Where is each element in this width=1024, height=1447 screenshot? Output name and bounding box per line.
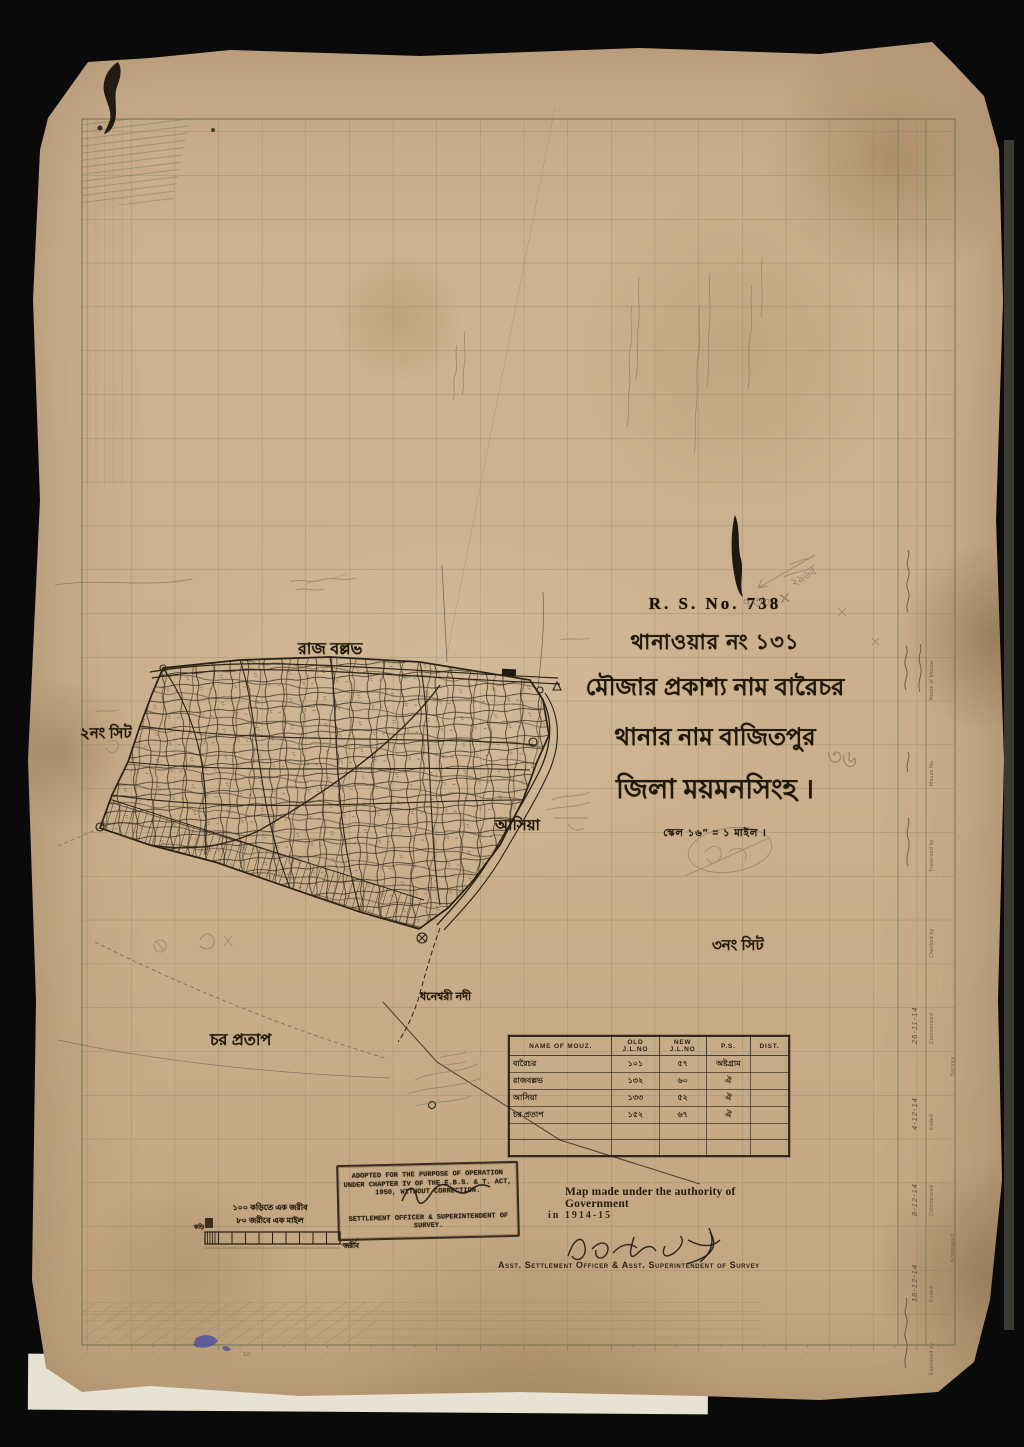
cell-old: ১৩২: [612, 1073, 659, 1090]
cell-new: ৬৭: [659, 1107, 706, 1124]
cell-name: বারৈচর: [509, 1056, 612, 1073]
margin-group-survey: Survey: [950, 1056, 956, 1076]
rs-number: R. S. No. 738: [545, 594, 885, 614]
mouza-table-header-row: NAME OF MOUZ. OLD J.L.NO NEW J.L.NO P.S.…: [509, 1036, 789, 1056]
scale-unit-right: জরীব: [343, 1240, 359, 1252]
authority-line1: Map made under the authority of Governme…: [565, 1186, 770, 1210]
mouza-name-line: মৌজার প্রকাশ্য নাম বারৈচর: [545, 669, 885, 709]
cell-dist: [750, 1107, 789, 1124]
table-row: বারৈচর ১০১ ৫৭ অষ্টগ্রাম: [509, 1056, 789, 1073]
scanned-map-sheet: R. S. No. 738 থানাওয়ার নং ১৩১ মৌজার প্র…: [0, 0, 1024, 1447]
cell-name: রাজবল্লভ: [509, 1073, 612, 1090]
title-block: R. S. No. 738 থানাওয়ার নং ১৩১ মৌজার প্র…: [545, 594, 885, 843]
margin-label: Mouza No.: [929, 759, 935, 786]
scale-caption-1: ১০০ কড়িতে এক জরীব: [200, 1202, 340, 1215]
cell-ps: ঐ: [706, 1073, 750, 1090]
label-river: ধনেশ্বরী নদী: [420, 988, 471, 1007]
margin-entry: 18-12-14: [910, 1264, 919, 1302]
scale-line: স্কেল ১৬″ = ১ মাইল ।: [545, 826, 885, 843]
cell-ps: ঐ: [706, 1090, 750, 1107]
cell-old: ১৩৩: [612, 1090, 659, 1107]
margin-entry: 4-12-14: [910, 1097, 919, 1130]
mouza-table: NAME OF MOUZ. OLD J.L.NO NEW J.L.NO P.S.…: [508, 1035, 790, 1157]
margin-label: Commenced: [929, 1185, 935, 1216]
authority-officer: Asst. Settlement Officer & Asst. Superin…: [498, 1260, 760, 1270]
cell-old: ১০১: [612, 1056, 659, 1073]
margin-entry: 26-11-14: [910, 1007, 919, 1044]
table-row: চর প্রতাপ ১৫২ ৬৭ ঐ: [509, 1107, 789, 1124]
cell-name: আসিয়া: [509, 1090, 612, 1107]
margin-label: Traversed by: [929, 839, 935, 872]
label-sheet-3: ৩নং সিট: [712, 934, 764, 959]
cell-new: ৫২: [659, 1090, 706, 1107]
margin-entry: 8-12-14: [910, 1183, 919, 1216]
cell-old: ১৫২: [612, 1107, 659, 1124]
cell-dist: [750, 1073, 789, 1090]
margin-label: Ended: [929, 1114, 935, 1130]
table-row-empty: [509, 1124, 789, 1140]
cell-dist: [750, 1090, 789, 1107]
adoption-stamp: ADOPTED FOR THE PURPOSE OF OPERATION UND…: [336, 1161, 520, 1241]
scan-edge-sliver: [1004, 140, 1014, 1330]
margin-label: Ended: [929, 1286, 935, 1302]
margin-label: Examined by: [929, 1343, 935, 1375]
margin-group-khanapuri: Khanapuri: [950, 1233, 956, 1262]
pencil-note-36: ৩৬: [823, 738, 859, 782]
scale-caption-2: ৮০ জরীবে এক মাইল: [200, 1215, 340, 1228]
label-sheet-2: ২নং সিট: [80, 722, 132, 747]
ruler-tick-number: 10: [243, 1352, 250, 1358]
margin-label: Checked by: [929, 929, 935, 958]
col-dist: DIST.: [750, 1036, 789, 1056]
label-east-mouza: আসিয়া: [495, 814, 540, 839]
table-row: রাজবল্লভ ১৩২ ৬০ ঐ: [509, 1073, 789, 1090]
margin-label: Commenced: [929, 1013, 935, 1044]
scale-unit-left: কড়ি: [194, 1222, 204, 1233]
col-old-jl: OLD J.L.NO: [612, 1036, 659, 1056]
col-name: NAME OF MOUZ.: [509, 1036, 612, 1056]
authority-line2: in 1914-15: [548, 1210, 612, 1221]
table-row: আসিয়া ১৩৩ ৫২ ঐ: [509, 1090, 789, 1107]
cell-ps: ঐ: [706, 1107, 750, 1124]
cell-ps: অষ্টগ্রাম: [706, 1056, 750, 1073]
table-row-empty: [509, 1140, 789, 1157]
label-north-mouza: রাজ বল্লভ: [298, 636, 362, 663]
cell-new: ৬০: [659, 1073, 706, 1090]
margin-label: Name of Mouza: [929, 661, 935, 700]
map-paper: R. S. No. 738 থানাওয়ার নং ১৩১ মৌজার প্র…: [0, 0, 1024, 1447]
col-ps: P.S.: [706, 1036, 750, 1056]
label-south-mouza: চর প্রতাপ: [210, 1027, 271, 1054]
cell-name: চর প্রতাপ: [509, 1107, 612, 1124]
thana-war-no: থানাওয়ার নং ১৩১: [545, 626, 885, 661]
col-new-jl: NEW J.L.NO: [659, 1036, 706, 1056]
cell-new: ৫৭: [659, 1056, 706, 1073]
cell-dist: [750, 1056, 789, 1073]
